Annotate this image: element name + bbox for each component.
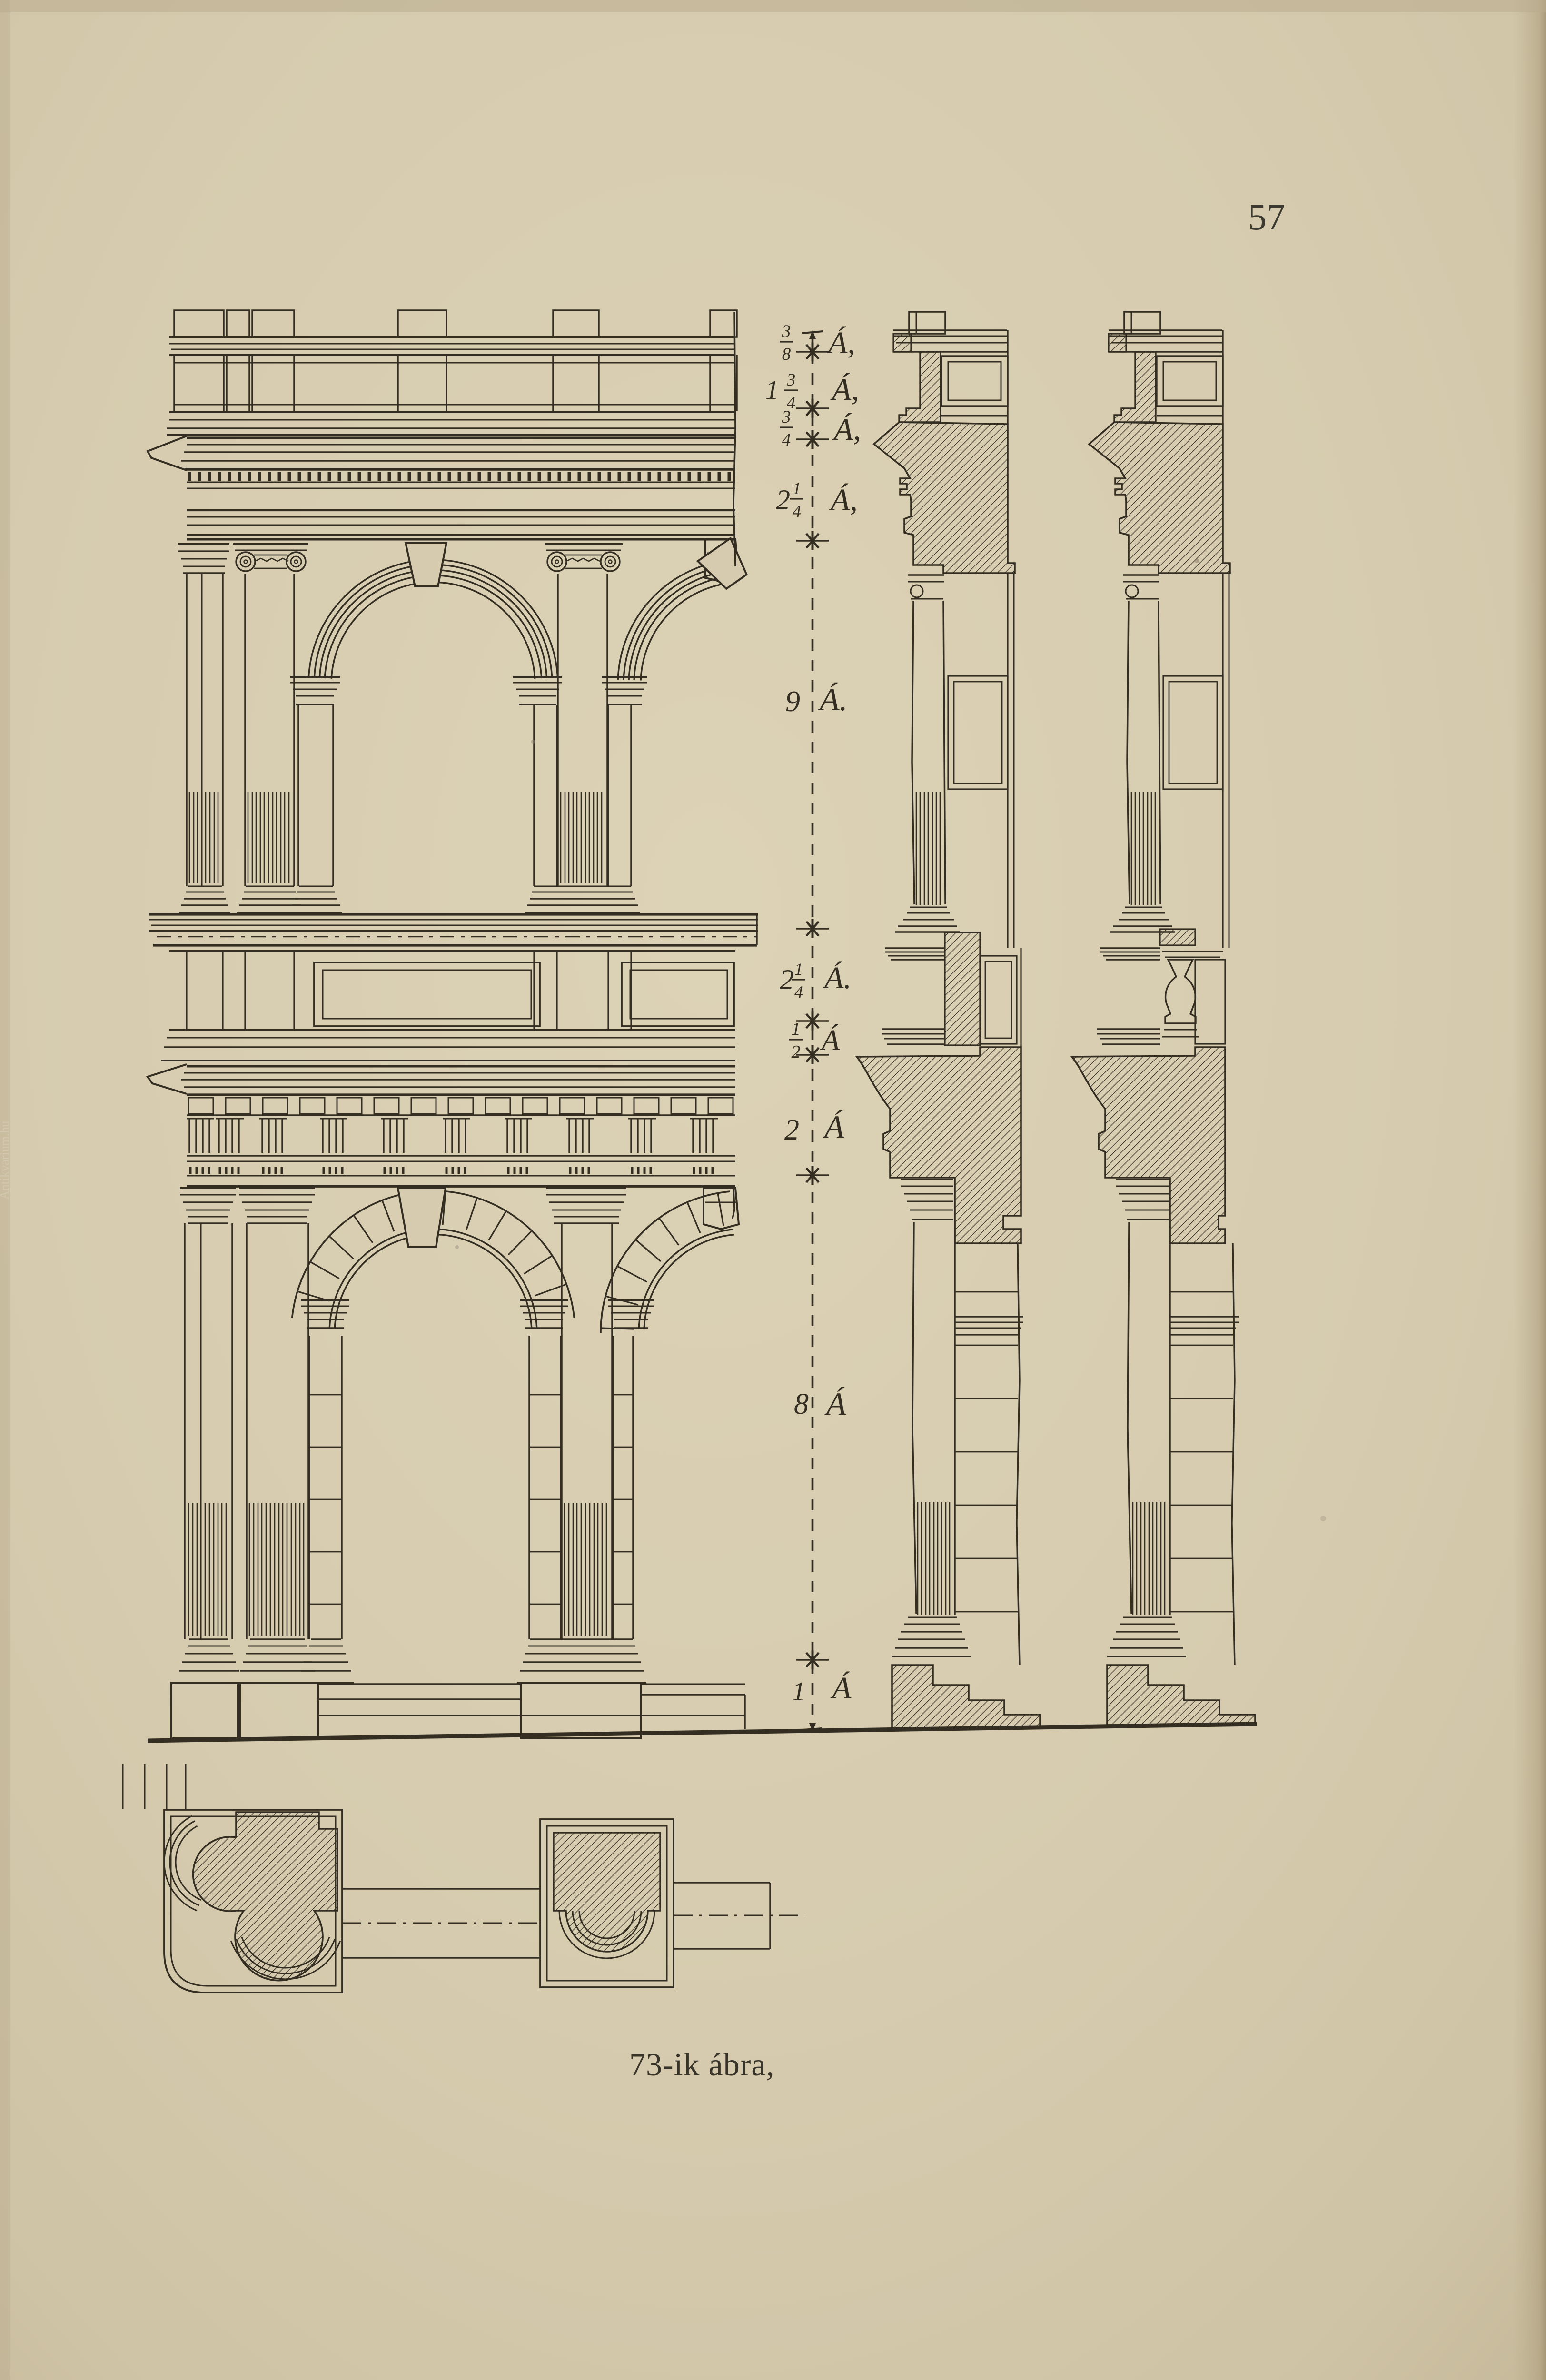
svg-text:2: 2 bbox=[792, 1042, 801, 1062]
svg-text:4: 4 bbox=[794, 982, 803, 1002]
svg-text:8: 8 bbox=[794, 1388, 809, 1420]
svg-text:1: 1 bbox=[792, 1019, 801, 1039]
svg-text:Á.: Á. bbox=[823, 961, 852, 995]
svg-text:9: 9 bbox=[785, 685, 800, 718]
svg-text:Á,: Á, bbox=[830, 372, 859, 407]
svg-text:4: 4 bbox=[793, 502, 801, 521]
svg-text:73-ik ábra,: 73-ik ábra, bbox=[629, 2046, 775, 2082]
svg-text:Á: Á bbox=[820, 1024, 840, 1057]
svg-text:3: 3 bbox=[782, 322, 791, 341]
svg-text:57: 57 bbox=[1248, 196, 1285, 238]
svg-text:Antikvarium.hu: Antikvarium.hu bbox=[0, 1121, 11, 1200]
svg-text:Á.: Á. bbox=[818, 681, 848, 717]
svg-text:Á,: Á, bbox=[826, 326, 855, 360]
svg-text:1: 1 bbox=[792, 1677, 805, 1706]
svg-text:Á,: Á, bbox=[829, 483, 858, 517]
svg-text:1: 1 bbox=[793, 479, 801, 498]
svg-text:8: 8 bbox=[782, 345, 791, 364]
svg-text:Á,: Á, bbox=[832, 412, 861, 447]
svg-text:4: 4 bbox=[782, 430, 791, 450]
svg-text:1: 1 bbox=[794, 960, 803, 979]
svg-text:Á: Á bbox=[830, 1671, 852, 1706]
svg-text:2: 2 bbox=[784, 1114, 799, 1146]
svg-text:Á: Á bbox=[823, 1109, 844, 1145]
svg-text:3: 3 bbox=[786, 370, 796, 390]
svg-text:2: 2 bbox=[776, 484, 790, 516]
svg-text:1: 1 bbox=[765, 376, 779, 405]
svg-text:2: 2 bbox=[780, 964, 794, 995]
svg-text:3: 3 bbox=[782, 407, 791, 427]
svg-text:Á: Á bbox=[824, 1386, 846, 1422]
